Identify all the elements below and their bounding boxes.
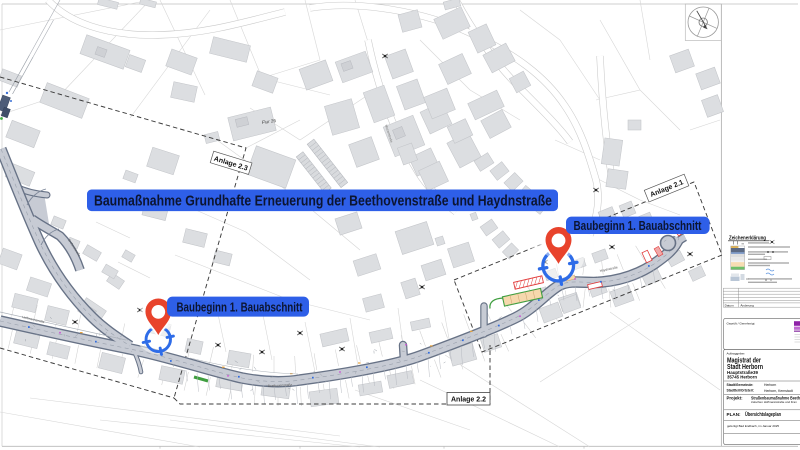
svg-text:Baumaßnahme Grundhafte Erneuer: Baumaßnahme Grundhafte Erneuerung der Be…	[94, 194, 552, 210]
svg-text:Projekt:: Projekt:	[727, 395, 744, 400]
svg-text:Baubeginn 1. Bauabschnitt: Baubeginn 1. Bauabschnitt	[177, 299, 304, 314]
svg-text:Stadtteil/Ortsteil:: Stadtteil/Ortsteil:	[727, 388, 754, 392]
svg-text:Baubeginn 1. Bauabschnitt: Baubeginn 1. Bauabschnitt	[574, 218, 703, 233]
svg-text:PLAN:: PLAN:	[727, 412, 742, 417]
svg-text:35745 Herborn: 35745 Herborn	[727, 375, 757, 380]
svg-text:Herborn, Kernstadt: Herborn, Kernstadt	[764, 389, 793, 393]
svg-text:zwischen Hoffmannstraße und Fr: zwischen Hoffmannstraße und Fran	[751, 400, 797, 404]
svg-text:gefertigt Bad Endbach, im Janu: gefertigt Bad Endbach, im Januar 2025	[727, 424, 779, 428]
svg-text:Anlage 2.2: Anlage 2.2	[451, 397, 486, 404]
svg-text:Änderung: Änderung	[740, 303, 754, 307]
svg-text:Übersichtslageplan: Übersichtslageplan	[745, 411, 781, 418]
svg-text:Datum: Datum	[725, 303, 735, 307]
svg-text:Herborn: Herborn	[764, 383, 776, 387]
svg-text:Geprüft / Genehmigt: Geprüft / Genehmigt	[727, 321, 755, 325]
svg-text:Stadt/Gemeinde:: Stadt/Gemeinde:	[727, 383, 754, 387]
